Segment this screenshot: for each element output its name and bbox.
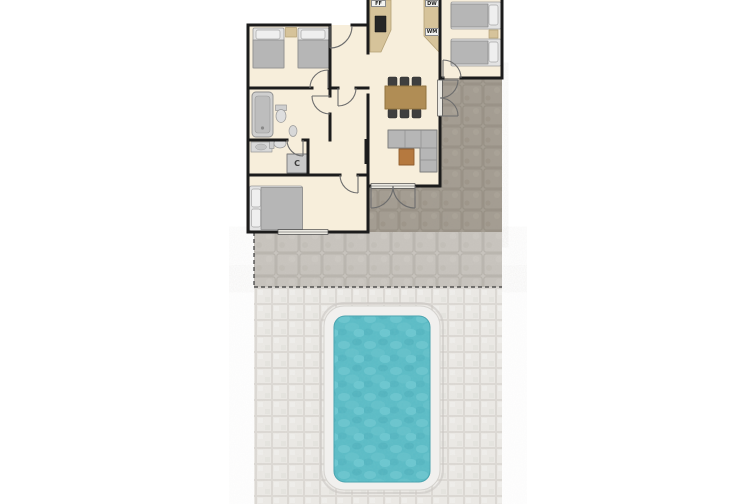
chair — [400, 109, 409, 118]
sink — [289, 126, 297, 137]
pillow — [489, 5, 498, 25]
single-bed — [451, 39, 501, 66]
dining-set — [385, 77, 426, 118]
washing-machine-label: WM — [425, 28, 439, 36]
dining-table — [385, 86, 426, 109]
double-bed — [250, 186, 303, 231]
chair — [388, 109, 397, 118]
chair — [412, 109, 421, 118]
chair — [412, 77, 421, 86]
swimming-pool — [321, 303, 443, 493]
single-bed — [451, 2, 501, 29]
fridge-freezer-label: FF — [371, 0, 386, 7]
cupboard-label: C — [287, 154, 307, 173]
dishwasher-label: DW — [425, 0, 439, 7]
terrace-texture — [254, 232, 502, 287]
toilet — [276, 105, 287, 123]
pillow — [252, 189, 261, 207]
nightstand — [286, 28, 297, 38]
pillow — [256, 30, 280, 39]
pillow — [301, 30, 325, 39]
nightstand — [489, 30, 498, 38]
pool-water-texture — [334, 316, 430, 482]
floor-plan — [0, 0, 755, 504]
patio-texture — [368, 186, 440, 232]
chair — [400, 77, 409, 86]
chair — [388, 77, 397, 86]
pillow — [489, 42, 498, 62]
bathtub — [252, 92, 273, 137]
oven-icon — [375, 16, 386, 32]
single-bed — [253, 28, 284, 68]
ottoman — [399, 149, 414, 165]
pillow — [252, 209, 261, 227]
floor-plan-canvas: FF DW WM C — [0, 0, 755, 504]
single-bed — [298, 28, 329, 68]
wc-sink — [251, 142, 272, 152]
